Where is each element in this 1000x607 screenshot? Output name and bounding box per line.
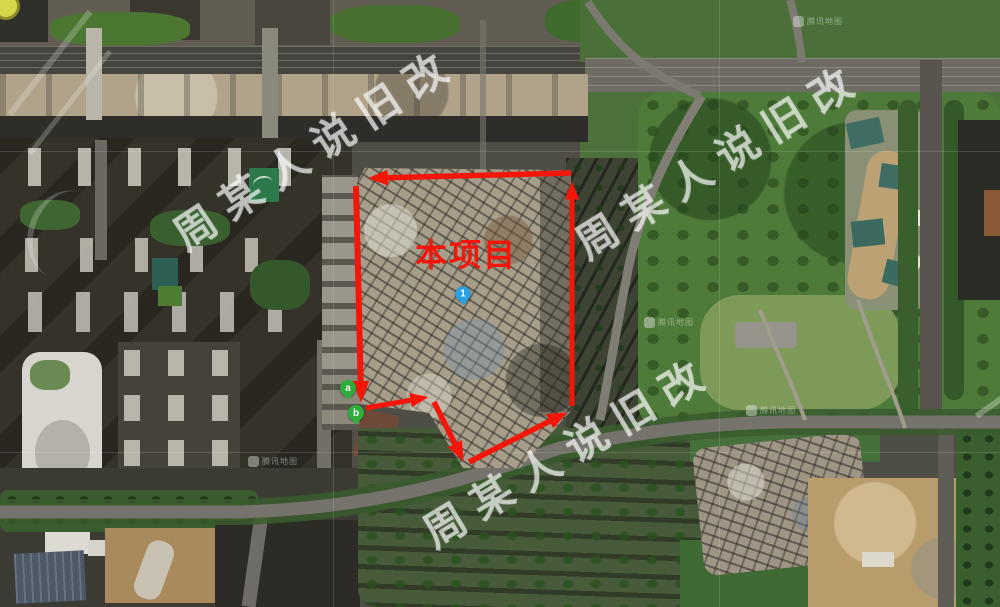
map-marker-a[interactable]: a <box>340 380 356 396</box>
marker-pin-tail <box>344 395 352 400</box>
marker-label: b <box>353 408 359 419</box>
satellite-map: 本项目 1 a b 周某人说旧改 周某人说旧改 周某人说旧改 腾讯地图 腾讯地图… <box>0 0 1000 607</box>
marker-pin-tail <box>459 301 467 306</box>
map-marker-b[interactable]: b <box>348 405 364 421</box>
marker-label: a <box>345 383 351 394</box>
map-marker-1[interactable]: 1 <box>456 287 471 302</box>
project-boundary-overlay <box>0 0 1000 607</box>
marker-pin-tail <box>352 420 360 425</box>
marker-label: 1 <box>460 289 466 300</box>
